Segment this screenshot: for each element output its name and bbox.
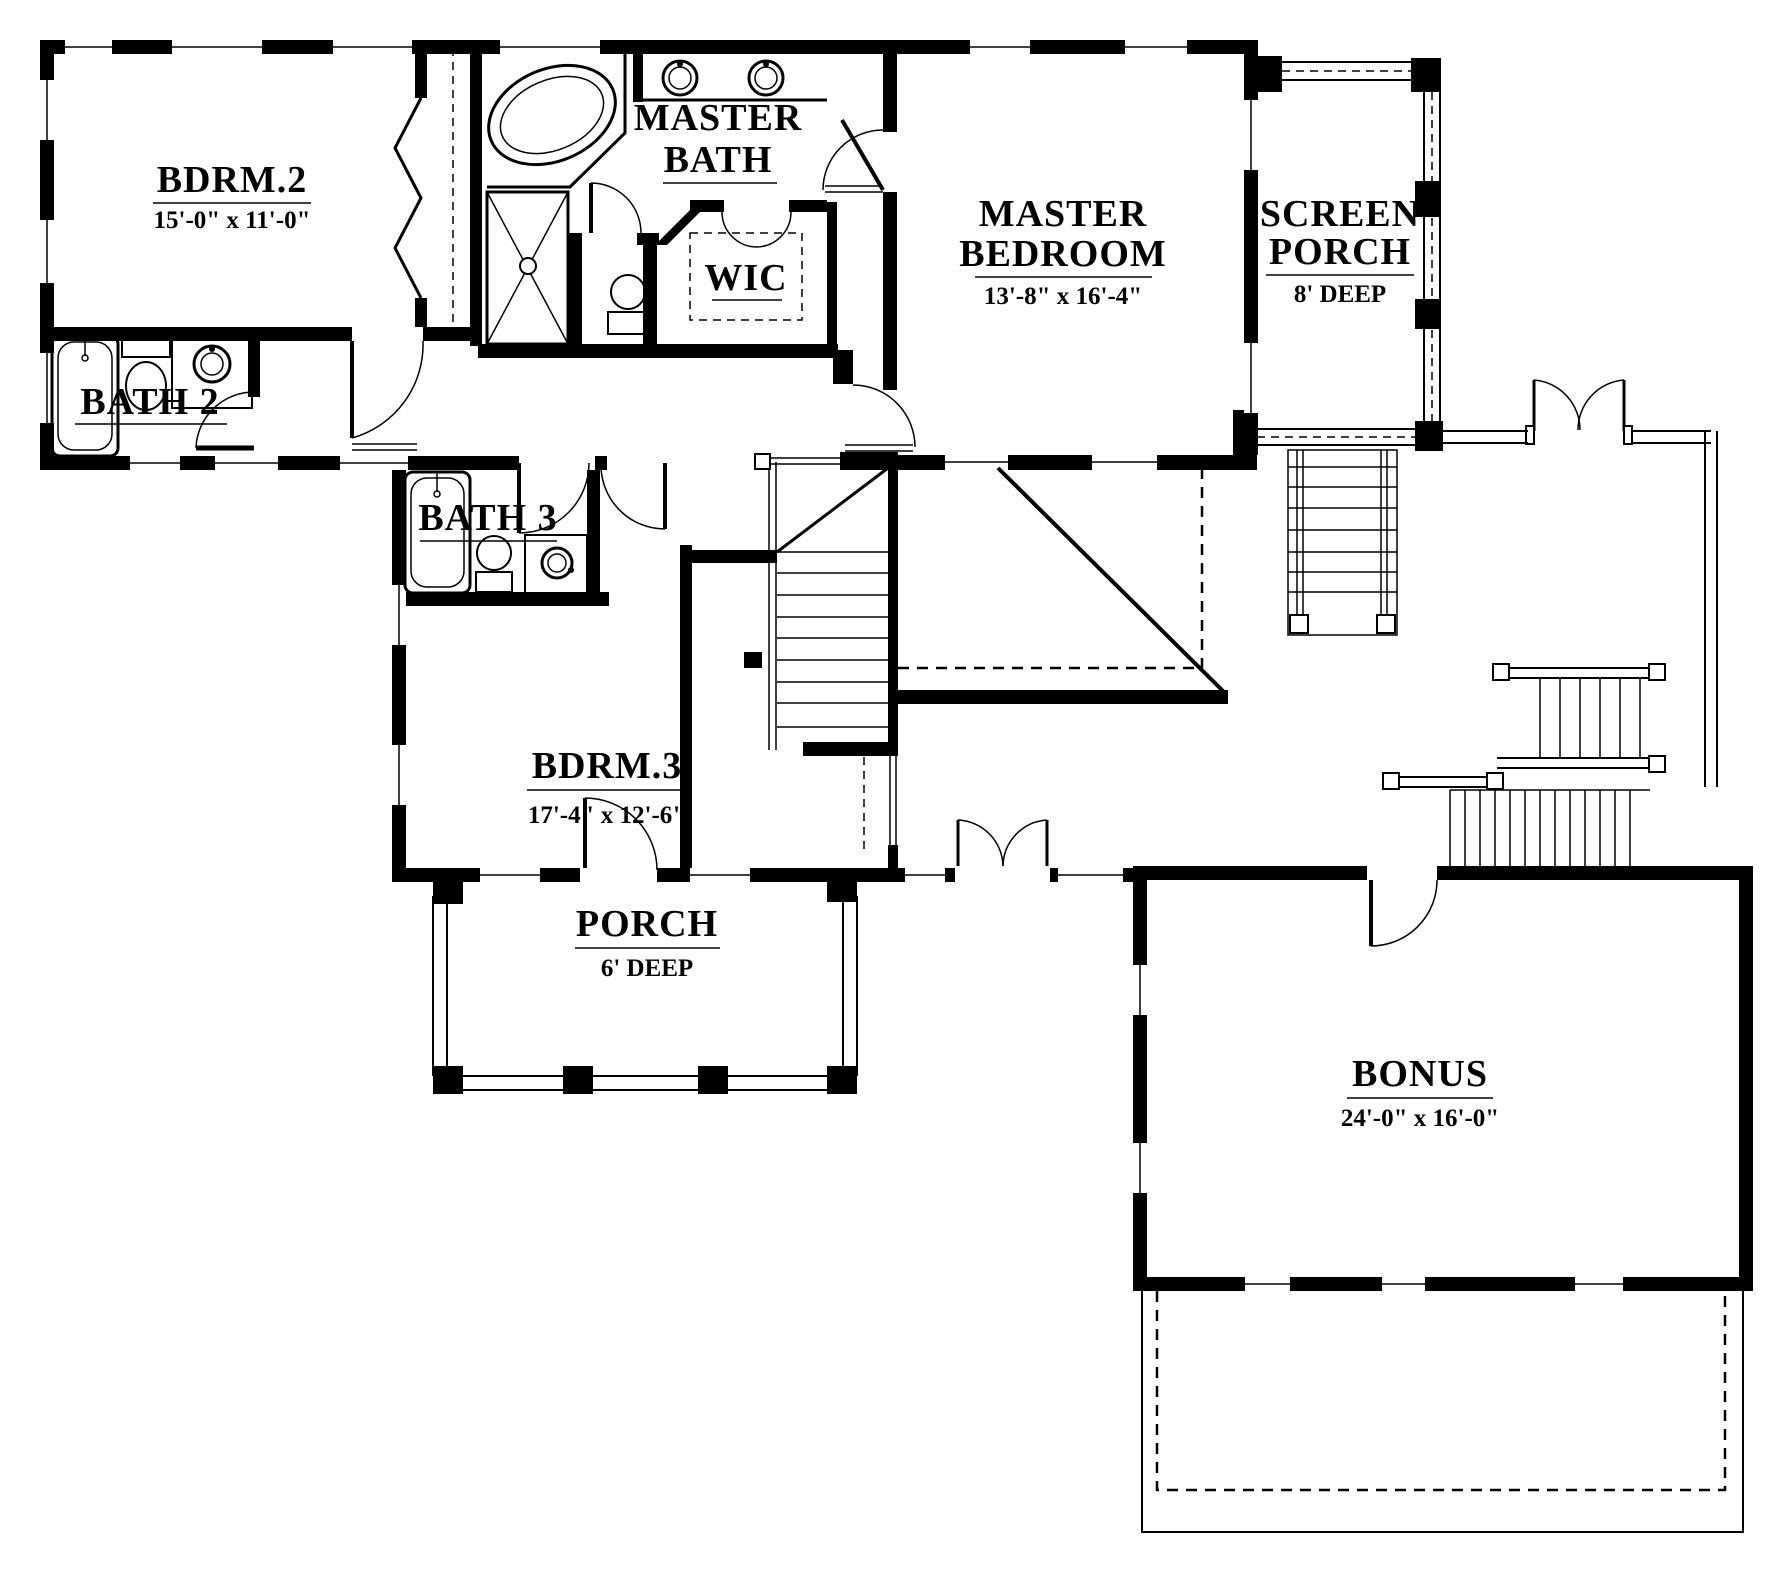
bonus-name: BONUS xyxy=(1352,1053,1488,1095)
master-bath-door xyxy=(823,120,883,192)
master-bedroom-dims: 13'-8" x 16'-4" xyxy=(984,283,1142,310)
deck-double-door xyxy=(958,820,1047,866)
bdrm2-name: BDRM.2 xyxy=(157,159,308,201)
floor-plan-drawing: BDRM.2 15'-0" x 11'-0" BATH 2 MASTER BAT… xyxy=(0,0,1792,1583)
bath3-name: BATH 3 xyxy=(418,497,557,539)
main-staircase xyxy=(755,454,888,855)
garden-tub-master xyxy=(473,47,630,187)
room-label-screen-porch: SCREEN PORCH 8' DEEP xyxy=(1260,193,1420,308)
double-vanity-master xyxy=(633,54,827,102)
porch-dims: 6' DEEP xyxy=(601,955,693,982)
room-label-wic: WIC xyxy=(704,257,787,300)
room-label-bath3: BATH 3 xyxy=(418,497,557,541)
exterior-double-door xyxy=(1526,380,1632,444)
bdrm3-name: BDRM.3 xyxy=(532,745,683,787)
room-label-bdrm3: BDRM.3 17'-4" x 12'-6" xyxy=(527,745,688,829)
screen-porch-line1: SCREEN xyxy=(1260,193,1420,235)
master-bedroom-door xyxy=(845,385,915,451)
room-label-master-bath: MASTER BATH xyxy=(634,97,803,183)
room-label-bonus: BONUS 24'-0" x 16'-0" xyxy=(1341,1053,1499,1132)
bdrm3-door xyxy=(601,463,665,529)
porch-name: PORCH xyxy=(576,903,718,945)
exterior-switchback-stair xyxy=(1383,664,1665,866)
wic-double-doors xyxy=(722,212,791,247)
room-label-porch: PORCH 6' DEEP xyxy=(575,903,720,982)
toilet-room-door xyxy=(591,183,641,233)
bonus-door xyxy=(1371,880,1437,946)
bdrm2-door xyxy=(352,341,423,450)
room-label-master-bedroom: MASTER BEDROOM 13'-8" x 16'-4" xyxy=(959,193,1167,310)
bdrm2-dims: 15'-0" x 11'-0" xyxy=(154,207,311,234)
open-area-vault-lines xyxy=(898,468,1224,692)
master-bedroom-line1: MASTER xyxy=(979,193,1148,235)
master-bedroom-line2: BEDROOM xyxy=(959,233,1167,275)
exterior-ladder-stair xyxy=(1288,450,1397,635)
room-label-bdrm2: BDRM.2 15'-0" x 11'-0" xyxy=(153,159,311,234)
master-bath-line1: MASTER xyxy=(634,97,803,139)
bath2-name: BATH 2 xyxy=(80,381,219,423)
screen-porch-dims: 8' DEEP xyxy=(1294,281,1386,308)
roof-outline-below-bonus xyxy=(1142,1291,1743,1532)
floor-plan-page: BDRM.2 15'-0" x 11'-0" BATH 2 MASTER BAT… xyxy=(0,0,1792,1583)
toilet-bath3 xyxy=(476,536,512,592)
shower-master xyxy=(487,192,568,344)
master-bath-line2: BATH xyxy=(664,139,773,181)
bonus-dims: 24'-0" x 16'-0" xyxy=(1341,1105,1499,1132)
room-label-bath2: BATH 2 xyxy=(75,381,227,424)
labels: BDRM.2 15'-0" x 11'-0" BATH 2 MASTER BAT… xyxy=(75,97,1499,1132)
bdrm3-dims: 17'-4" x 12'-6" xyxy=(528,802,686,829)
wic-name: WIC xyxy=(704,257,787,299)
screen-porch-line2: PORCH xyxy=(1269,231,1411,273)
